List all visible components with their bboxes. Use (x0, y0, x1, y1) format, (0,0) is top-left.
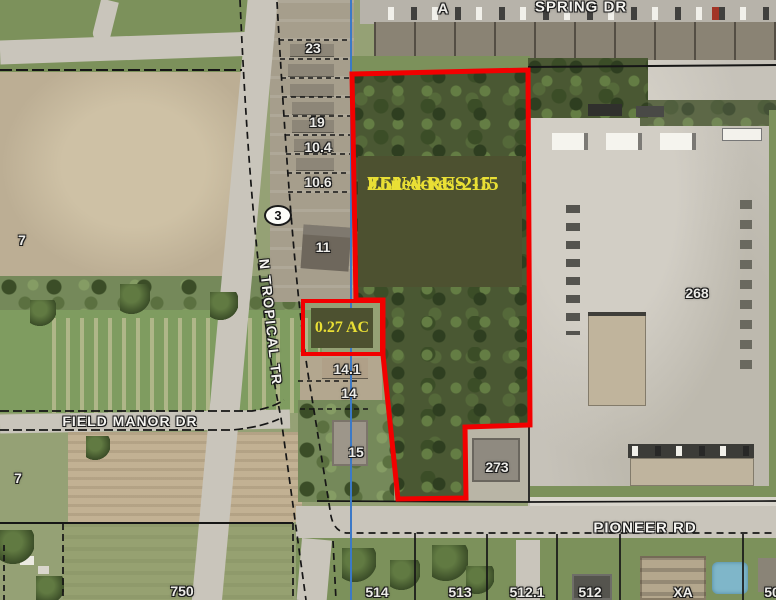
parcel-label-10-4: 10.4 (304, 139, 331, 155)
parcel-label-750: 750 (170, 583, 193, 599)
parcel-label-15: 15 (348, 444, 364, 460)
parcel-label-50: 50 (764, 584, 776, 600)
parcel-label-xa: XA (673, 584, 692, 600)
parcel-label-273: 273 (485, 459, 508, 475)
parcel-label-512: 512 (578, 584, 601, 600)
parcel-label-14: 14 (341, 385, 357, 401)
parcel-label-19: 19 (309, 114, 325, 130)
aerial-parcel-map[interactable]: 3.52 Acres Zoned RU-2-15 FLU—RES 15 0.27… (0, 0, 776, 600)
parcel-label-14-1: 14.1 (333, 361, 360, 377)
parcel-label-7-south: 7 (14, 470, 22, 486)
parcel-label-268: 268 (685, 285, 708, 301)
parcel-label-10-6: 10.6 (304, 174, 331, 190)
parcel-label-23: 23 (305, 40, 321, 56)
parcel-number-labels-layer: 231910.410.61114.11415273268777505145135… (0, 0, 776, 600)
parcel-label-11: 11 (316, 239, 331, 255)
parcel-label-513: 513 (448, 584, 471, 600)
parcel-label-514: 514 (365, 584, 388, 600)
parcel-label-512-1: 512.1 (509, 584, 544, 600)
parcel-label-7-north: 7 (18, 232, 26, 248)
